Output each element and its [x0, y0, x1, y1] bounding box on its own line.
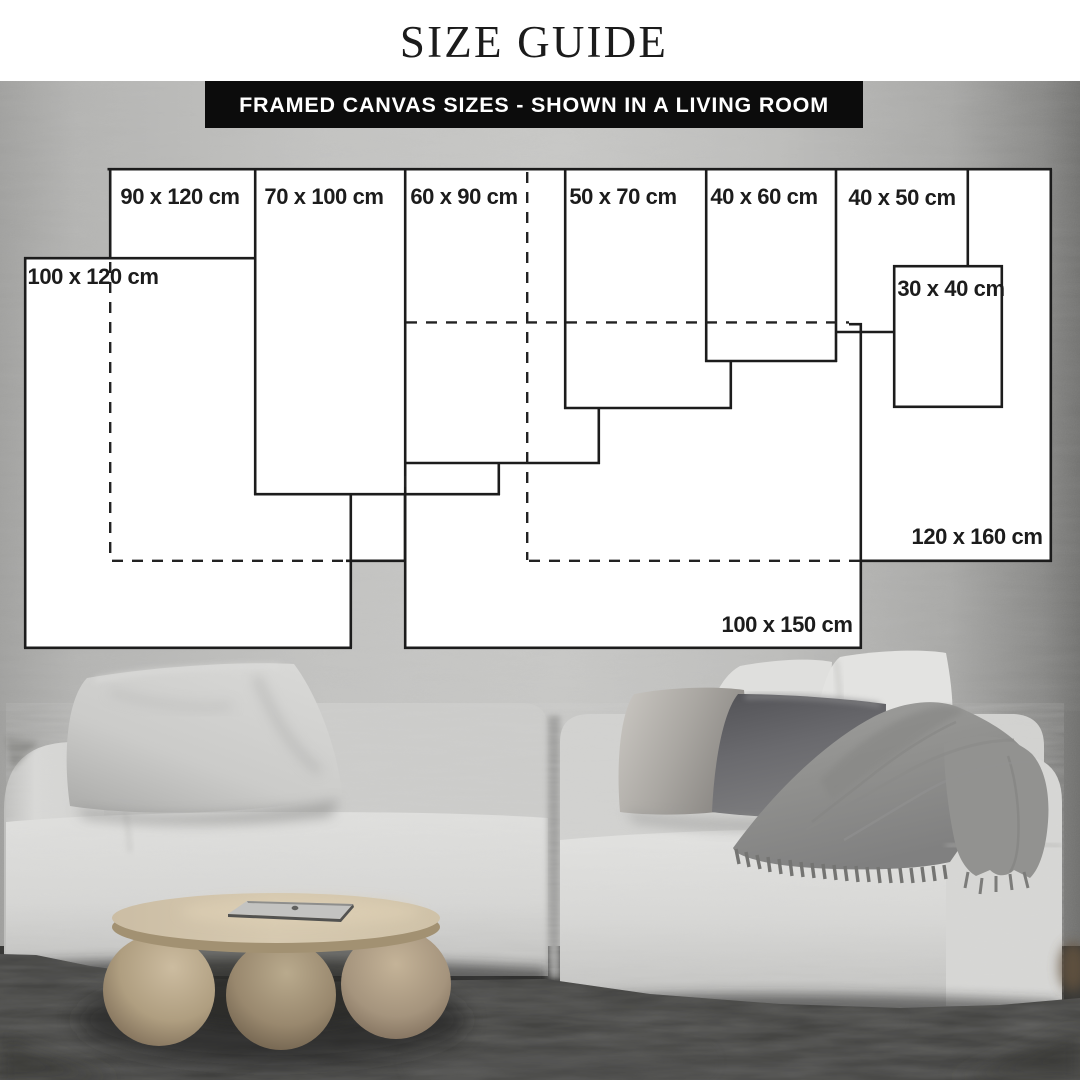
svg-text:50 x 70 cm: 50 x 70 cm — [569, 184, 676, 209]
svg-text:70 x 100 cm: 70 x 100 cm — [264, 184, 383, 209]
svg-text:60 x 90 cm: 60 x 90 cm — [410, 184, 517, 209]
svg-text:100 x 120 cm: 100 x 120 cm — [28, 264, 159, 289]
svg-text:90 x 120 cm: 90 x 120 cm — [120, 184, 239, 209]
svg-text:30 x 40 cm: 30 x 40 cm — [897, 276, 1004, 301]
svg-text:40 x 60 cm: 40 x 60 cm — [710, 184, 817, 209]
svg-text:120 x 160 cm: 120 x 160 cm — [912, 524, 1043, 549]
svg-text:FRAMED CANVAS SIZES - SHOWN IN: FRAMED CANVAS SIZES - SHOWN IN A LIVING … — [239, 93, 829, 117]
svg-text:SIZE GUIDE: SIZE GUIDE — [400, 17, 668, 67]
svg-text:40 x 50 cm: 40 x 50 cm — [848, 185, 955, 210]
svg-text:100 x 150 cm: 100 x 150 cm — [722, 612, 853, 637]
